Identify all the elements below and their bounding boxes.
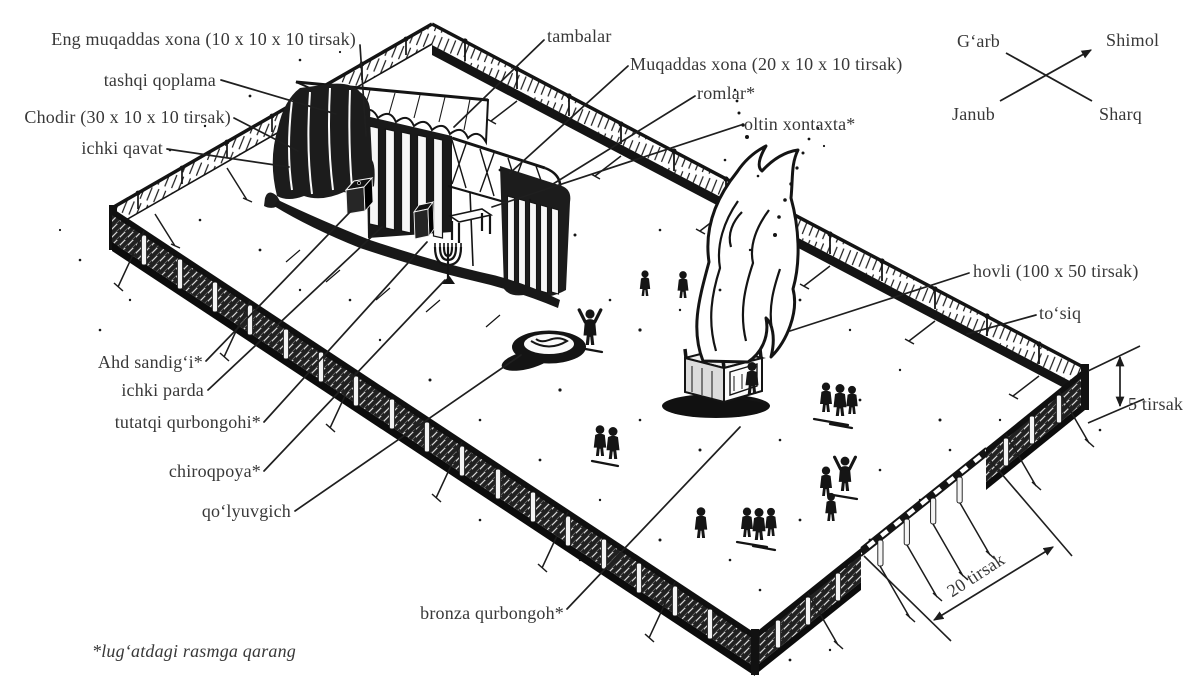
label-fence-height: 5 tirsak [1128, 395, 1183, 414]
label-ichki-parda: ichki parda [121, 381, 204, 400]
label-eng-muqaddas-xona: Eng muqaddas xona (10 x 10 x 10 tirsak) [51, 30, 356, 49]
label-hovli: hovli (100 x 50 tirsak) [973, 262, 1139, 281]
label-romlar: romlar* [697, 84, 755, 103]
label-bronza-qurbongoh: bronza qurbongoh* [420, 604, 564, 623]
compass-label-north: Shimol [1106, 31, 1159, 50]
label-oltin-xontaxta: oltin xontaxta* [744, 115, 855, 134]
label-muqaddas-xona: Muqaddas xona (20 x 10 x 10 tirsak) [630, 55, 902, 74]
label-qolyuvgich: qo‘lyuvgich [202, 502, 291, 521]
label-chodir: Chodir (30 x 10 x 10 tirsak) [24, 108, 231, 127]
east-corner-post [1081, 364, 1089, 410]
tabernacle-illustration [0, 0, 1193, 686]
label-tashqi-qoplama: tashqi qoplama [104, 71, 216, 90]
compass-label-south: Janub [952, 105, 995, 124]
label-tosiq: to‘siq [1039, 304, 1081, 323]
south-corner-post [751, 629, 759, 675]
compass-label-east: Sharq [1099, 105, 1142, 124]
label-ahd-sandigi: Ahd sandig‘i* [98, 353, 203, 372]
compass-label-west: G‘arb [957, 32, 1000, 51]
label-ichki-qavat: ichki qavat [81, 139, 163, 158]
incense-altar [414, 202, 434, 239]
label-chiroqpoya: chiroqpoya* [169, 462, 261, 481]
footnote: *lug‘atdagi rasmga qarang [92, 642, 296, 661]
label-tambalar: tambalar [547, 27, 612, 46]
label-tutatqi-qurbongohi: tutatqi qurbongohi* [115, 413, 261, 432]
tabernacle-diagram-page: Eng muqaddas xona (10 x 10 x 10 tirsak) … [0, 0, 1193, 686]
